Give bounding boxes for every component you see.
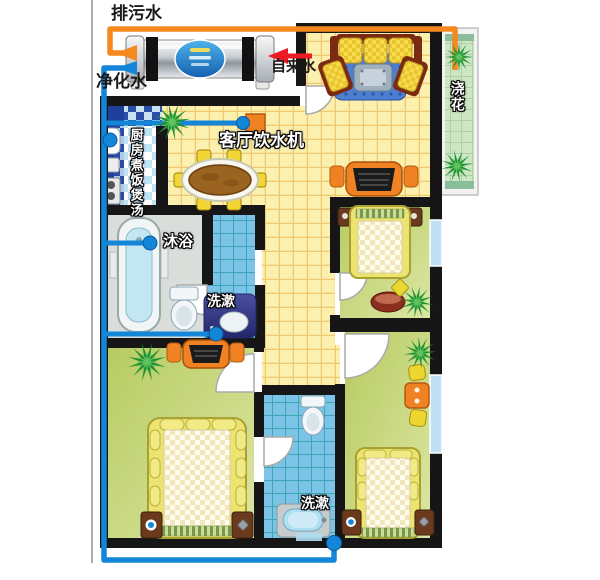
supply-dot-wash-main [209,327,223,341]
piping-floorplan-diagram: 排污水 自来水 净化水 客厅饮水机 厨房煮饭煲汤 沐浴 洗漱 浇花 洗漱 [0,0,600,580]
shower-label: 沐浴 [163,234,193,250]
floorplan-canvas [0,0,600,580]
bathtub [110,218,168,332]
supply-dot-dispenser [237,117,250,130]
supply-dot-shower [143,236,157,250]
bed-top-right [338,206,422,278]
stool-yellow [409,409,427,427]
bed-master [141,418,253,538]
supply-dot-kitchen [103,133,117,147]
water-purifier [126,36,274,89]
bed-bottom-right [342,448,434,538]
toilet-second [301,396,325,435]
purified-water-label: 净化水 [96,73,147,91]
purifier-badge [175,40,225,78]
drain-water-label: 排污水 [111,5,162,23]
dispenser-label: 客厅饮水机 [219,132,304,150]
toilet-main [170,287,198,330]
kitchen-usage-label: 厨房煮饭煲汤 [129,128,143,218]
stool-yellow [408,364,426,381]
window-bedroom-bottom [430,375,442,453]
wash-second-label: 洗漱 [301,496,329,511]
side-table-orange [405,383,429,408]
watering-label: 浇花 [450,81,465,113]
wash-main-label: 洗漱 [207,294,235,309]
sofa-set [317,34,430,100]
tap-water-label: 自来水 [271,59,316,75]
supply-dot-wash-second [327,536,342,551]
window-bedroom-top [430,220,442,266]
